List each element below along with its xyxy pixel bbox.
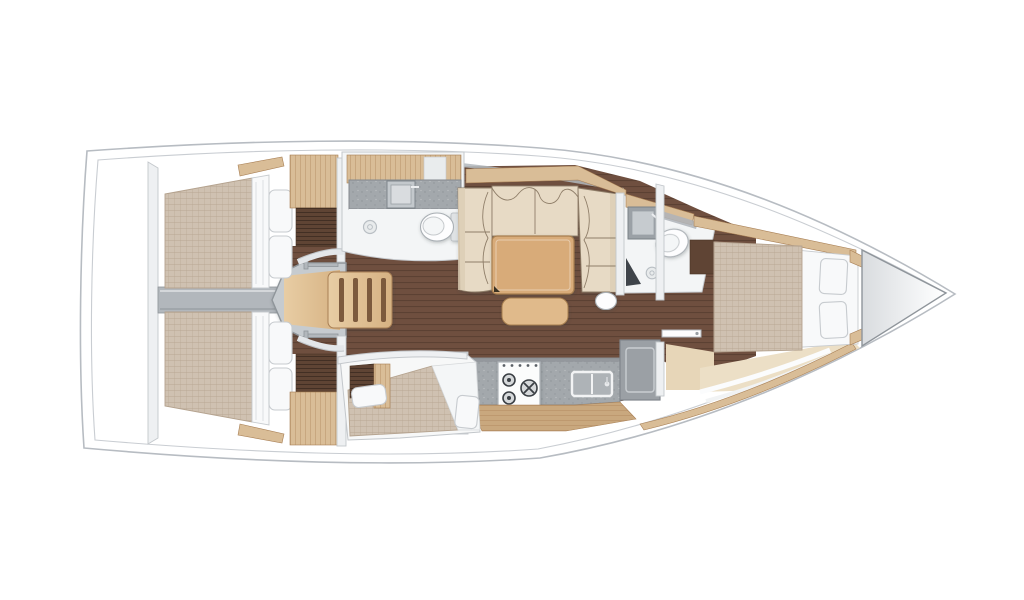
cabin-door-open [662, 330, 701, 337]
fridge [620, 340, 660, 400]
pillow [269, 322, 292, 364]
tambour-cabinet [296, 208, 338, 246]
berth-mattress [714, 242, 802, 352]
salon-table [492, 236, 574, 294]
galley-sink [572, 372, 612, 396]
salon-pouf [596, 293, 617, 310]
aft-head [342, 152, 464, 261]
starboard-berth-cabin [338, 351, 480, 440]
pillow [819, 301, 848, 338]
aft-head-toilet [421, 213, 461, 241]
berth-sheet [252, 175, 269, 288]
berth-sheet [252, 312, 269, 425]
wardrobe [290, 392, 338, 445]
pillow [269, 236, 292, 278]
pillow [454, 395, 479, 429]
yacht-floorplan-image [0, 0, 1024, 600]
aft-head-sink [387, 181, 419, 208]
pillow [269, 368, 292, 410]
wardrobe [290, 155, 338, 208]
forward-head-sink [628, 207, 660, 239]
galley-stove [498, 362, 540, 406]
pillow [819, 258, 848, 294]
pillow [351, 384, 387, 409]
engine-compartment [158, 287, 280, 313]
salon-stool [502, 298, 568, 325]
pillow [269, 190, 292, 232]
double-berth-mattress [165, 312, 252, 422]
aft-head-shower-drain [364, 221, 377, 234]
island-double-berth [714, 242, 864, 352]
tambour-cabinet [296, 354, 338, 392]
double-berth-mattress [165, 178, 252, 288]
bedside-cabinet [690, 240, 714, 274]
transom-bulkhead-wall [148, 162, 158, 444]
floorplan-canvas [0, 0, 1024, 600]
forward-head-wall [616, 193, 624, 295]
